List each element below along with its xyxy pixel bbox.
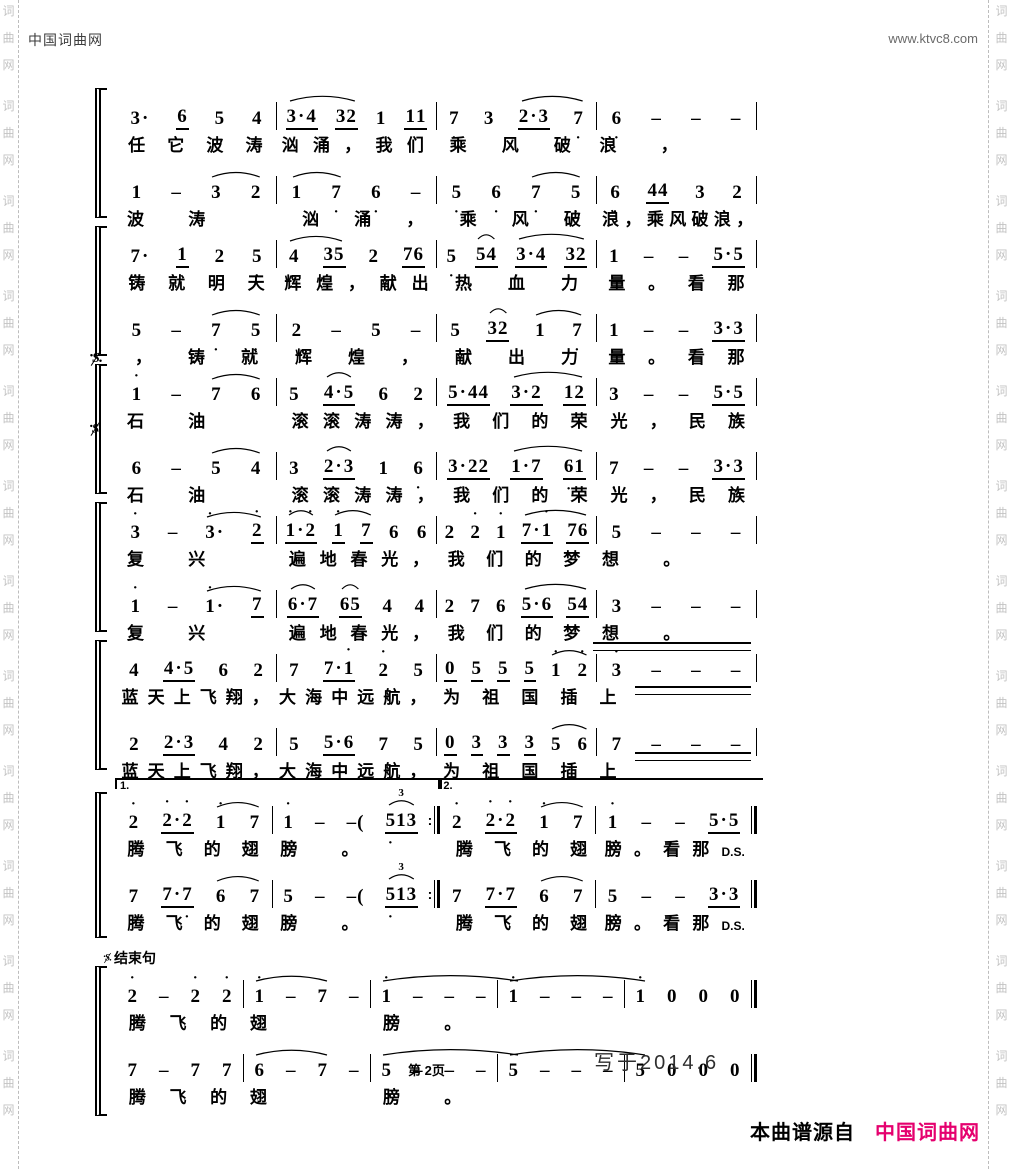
watermark-char: 网 <box>2 438 14 452</box>
note: – <box>330 320 343 342</box>
lyrics-line: 铸就明天辉煌，献出热血力量。看那 <box>117 269 757 293</box>
lyric-measure: 腾飞的翅 <box>445 909 597 933</box>
slur-arc <box>289 232 343 242</box>
note-digit: 2 <box>486 810 497 832</box>
note-digit: 6 <box>612 108 623 130</box>
note: 7 <box>127 1060 140 1082</box>
watermark-char: 词 <box>995 194 1007 208</box>
note: – <box>643 384 656 406</box>
note-digit: 3 <box>336 106 347 128</box>
barline <box>756 728 757 756</box>
note: 1 <box>495 522 508 544</box>
note: – <box>650 596 663 618</box>
note-digit: 3 <box>709 884 720 906</box>
lyric: 腾 <box>456 909 473 934</box>
note: 5 <box>570 182 583 204</box>
note: 3·3 <box>712 456 744 480</box>
note: 7 <box>378 734 391 756</box>
watermark-char: 网 <box>995 913 1007 927</box>
notes-line: 2–221–7–1–––1–––1000 <box>117 966 757 1008</box>
note: 2 <box>252 734 265 756</box>
note-digit: 4 <box>306 106 317 128</box>
ending-label: S结束句 <box>103 948 156 968</box>
note-digit: 7 <box>182 884 193 906</box>
note: – <box>410 182 423 204</box>
note: 1 <box>534 320 547 342</box>
dot: · <box>334 732 343 754</box>
note: 5 <box>288 384 301 406</box>
note-digit: 7 <box>612 734 623 756</box>
lyric: 梦 <box>563 545 580 570</box>
measure: 6–7– <box>244 1060 370 1082</box>
lyric: D.S. <box>722 919 745 933</box>
note: 4·5 <box>323 382 355 406</box>
note: – <box>444 986 457 1008</box>
note: 7 <box>210 384 223 406</box>
note-digit: 6 <box>578 520 589 542</box>
note-digit: 7 <box>361 520 372 542</box>
lyrics-line: 任它波涛汹涌，我们乘风破浪， <box>117 131 757 155</box>
note: 2·2 <box>161 810 193 834</box>
barline: : <box>428 880 441 908</box>
note: 11 <box>404 106 427 130</box>
note-digit: – <box>331 320 342 342</box>
note: 5 <box>412 734 425 756</box>
note-digit: 5 <box>733 382 744 404</box>
measure: 3––– <box>597 660 756 682</box>
measure: 77·767 <box>117 884 272 908</box>
measure: 2–5– <box>277 320 436 342</box>
watermark-char: 网 <box>2 1008 14 1022</box>
note-digit: 6 <box>578 734 589 756</box>
measure: 6·76544 <box>277 594 436 618</box>
dot: · <box>724 244 733 266</box>
volta-bracket: 1. <box>115 778 442 789</box>
watermark-char: 曲 <box>995 31 1007 45</box>
lyric: 大 <box>279 683 296 708</box>
note: 1·2 <box>285 520 317 544</box>
note-digit: 5 <box>452 182 463 204</box>
note-digit: 3 <box>184 732 195 754</box>
slur-arc <box>524 506 587 516</box>
note: –( <box>346 886 366 908</box>
note: 2 <box>128 734 141 756</box>
dot: · <box>298 594 307 616</box>
note-digit: – <box>691 108 702 130</box>
note-digit: – <box>651 596 662 618</box>
note: 7 <box>448 108 461 130</box>
lyric: ， <box>344 131 361 156</box>
note: 5 <box>251 246 264 268</box>
note-digit: 1 <box>539 812 550 834</box>
note: 2 <box>378 660 391 682</box>
note: 0 <box>698 986 711 1008</box>
lyric: ， <box>661 131 678 156</box>
lyric-measure: 遍地春光， <box>282 545 436 569</box>
note: 1 <box>375 108 388 130</box>
lyric-measure: 铸就明天 <box>117 269 276 293</box>
note-digit: 7 <box>211 384 222 406</box>
note-digit: 1 <box>609 246 620 268</box>
note-digit: 2 <box>253 660 264 682</box>
note-digit: 2 <box>222 986 233 1008</box>
measure: 6–54 <box>117 458 276 480</box>
notes-line: 1–32176–567564432 <box>117 162 757 204</box>
watermark-char: 网 <box>995 1103 1007 1117</box>
lyric: 那 <box>728 269 745 294</box>
note-digit: 2 <box>379 660 390 682</box>
note: 7 <box>221 1060 234 1082</box>
note: 7·7 <box>485 884 517 908</box>
note-digit: – <box>731 522 742 544</box>
note-digit: 4 <box>382 596 393 618</box>
note-digit: 3 <box>205 522 216 544</box>
note-digit: 7 <box>211 320 222 342</box>
note: 5 <box>288 734 301 756</box>
note-digit: 7 <box>252 594 263 616</box>
note-digit: 2 <box>324 456 335 478</box>
note-digit: 5 <box>344 382 355 404</box>
note-digit: – <box>572 1060 583 1082</box>
note: 3 <box>611 596 624 618</box>
note: 6 <box>370 182 383 204</box>
note-digit: 5 <box>729 810 740 832</box>
note: 1 <box>215 812 228 834</box>
note-digit: 2 <box>445 596 456 618</box>
lyric: 国 <box>521 683 538 708</box>
note-digit: 2 <box>576 244 587 266</box>
note: 1 <box>332 520 345 544</box>
note-digit: 1 <box>286 520 297 542</box>
note-digit: 3 <box>612 596 623 618</box>
dot: · <box>522 382 531 404</box>
lyric: 腾 <box>129 1083 146 1108</box>
barline <box>756 654 757 682</box>
measure: 55·675 <box>277 732 436 756</box>
lyric: 们 <box>407 131 424 156</box>
note: 4 <box>381 596 394 618</box>
lyric-measure <box>506 1083 628 1107</box>
note: 5 <box>471 658 484 682</box>
system-6: 22·2171––(513:22·2171––5·53腾飞的翅膀。:腾飞的翅膀。… <box>95 778 757 938</box>
note: – <box>690 108 703 130</box>
note: 2 <box>214 246 227 268</box>
note-digit: 5 <box>211 458 222 480</box>
lyric: 飞 <box>200 683 217 708</box>
lyric: 。 <box>342 835 359 860</box>
note-digit: 2 <box>531 382 542 404</box>
slur-arc <box>211 444 261 454</box>
lyric-measure: 膀。 <box>270 909 432 933</box>
note: 1 <box>131 182 144 204</box>
watermark-char: 词 <box>995 764 1007 778</box>
voice-1: 22·2171––(513:22·2171––5·53腾飞的翅膀。:腾飞的翅膀。… <box>117 792 757 859</box>
slur-arc <box>326 368 352 378</box>
note-digit: 2 <box>253 734 264 756</box>
note: 6 <box>495 596 508 618</box>
dot: · <box>174 658 183 680</box>
lyric: 荣 <box>570 407 587 432</box>
note-digit: 2 <box>128 986 139 1008</box>
watermark-char: 词 <box>995 1049 1007 1063</box>
note: 5 <box>214 108 227 130</box>
measure: 77·767 <box>440 884 595 908</box>
slur-arc <box>382 1046 519 1056</box>
note-digit: – <box>159 986 170 1008</box>
note-digit: – <box>159 1060 170 1082</box>
note: 5 <box>250 320 263 342</box>
note-digit: 5 <box>289 734 300 756</box>
note-digit: 1 <box>416 106 427 128</box>
note: 7· <box>129 246 151 268</box>
lyric: 腾 <box>456 835 473 860</box>
note: 7·1 <box>521 520 553 544</box>
note: 7 <box>530 182 543 204</box>
note-digit: 5 <box>350 594 361 616</box>
note-digit: – <box>347 812 358 834</box>
note: – <box>643 458 656 480</box>
note-digit: 4 <box>536 244 547 266</box>
note: 7·7 <box>161 884 193 908</box>
note: 3 <box>694 182 707 204</box>
note: 3 <box>483 108 496 130</box>
note-digit: – <box>445 986 456 1008</box>
watermark-char: 曲 <box>2 126 14 140</box>
watermark-char: 词 <box>995 859 1007 873</box>
note: – <box>674 812 687 834</box>
note-digit: 3 <box>289 458 300 480</box>
dot: · <box>216 596 225 618</box>
note: 2 <box>128 812 141 834</box>
note: 6 <box>538 886 551 908</box>
lyric-measure: 蓝天上飞翔， <box>117 683 274 707</box>
note: 3· <box>204 522 226 544</box>
notes-line: 22·2171––(513:22·2171––5·53 <box>117 792 757 834</box>
note: 3 <box>608 384 621 406</box>
note-digit: 5 <box>413 734 424 756</box>
note: 1 <box>538 812 551 834</box>
note-digit: 7 <box>130 246 141 268</box>
lyrics-line: 腾飞的翅膀。:腾飞的翅膀。看那D.S. <box>117 835 757 859</box>
lyric: 地 <box>320 545 337 570</box>
note-digit: – <box>168 596 179 618</box>
note-digit: 1 <box>283 812 294 834</box>
lyric: 。 <box>648 269 665 294</box>
note-digit: 4 <box>487 244 498 266</box>
note-digit: 1 <box>396 810 407 832</box>
note-digit: – <box>315 812 326 834</box>
lyric: 春 <box>350 545 367 570</box>
voice-1: 2–221–7–1–––1–––1000腾飞的翅膀。 <box>117 966 757 1033</box>
note: 5 <box>210 458 223 480</box>
measure: 1––3·3 <box>597 318 756 342</box>
note-digit: – <box>572 986 583 1008</box>
note-digit: 2 <box>215 246 226 268</box>
note-digit: 5 <box>184 658 195 680</box>
measure: 1––(513 <box>273 810 428 834</box>
note-digit: – <box>679 384 690 406</box>
note: 1 <box>282 812 295 834</box>
note: 6 <box>215 886 228 908</box>
note-digit: 5 <box>447 246 458 268</box>
note-digit: 3 <box>713 318 724 340</box>
note-digit: – <box>642 812 653 834</box>
lyric: 波 <box>206 131 223 156</box>
lyric-measure <box>506 1009 628 1033</box>
note-digit: – <box>286 986 297 1008</box>
watermark-char: 网 <box>995 248 1007 262</box>
note-digit: – <box>411 182 422 204</box>
note: 5 <box>370 320 383 342</box>
slur-arc <box>551 720 588 730</box>
note-digit: 5 <box>283 886 294 908</box>
note-digit: – <box>315 886 326 908</box>
note-digit: – <box>476 986 487 1008</box>
note-digit: 1 <box>564 382 575 404</box>
lyric: 中 <box>331 683 348 708</box>
measure: 732·37 <box>437 106 596 130</box>
watermark-char: 词 <box>2 859 14 873</box>
note-digit: 2 <box>445 522 456 544</box>
written-date: 写于2014.6 <box>594 1046 719 1075</box>
note: – <box>167 522 180 544</box>
note-digit: 3 <box>516 244 527 266</box>
note: 513 <box>385 884 419 908</box>
note: 7 <box>330 182 343 204</box>
note: 54 <box>475 244 498 268</box>
note-digit: 3 <box>498 732 509 754</box>
note: – <box>730 108 743 130</box>
dot: · <box>527 244 536 266</box>
note: 2 <box>221 986 234 1008</box>
watermark-char: 词 <box>2 384 14 398</box>
measure: 055512 <box>437 658 596 682</box>
note-digit: 2 <box>369 246 380 268</box>
slur-arc <box>531 168 581 178</box>
note-digit: 3 <box>287 106 298 128</box>
notes-line: 7·1254352765543·4321––5·5 <box>117 226 757 268</box>
slur-arc <box>513 442 583 452</box>
measure: 22·217 <box>440 810 595 834</box>
note-digit: – <box>642 886 653 908</box>
lyric: D.S. <box>722 845 745 859</box>
watermark-char: 网 <box>2 248 14 262</box>
note: 5 <box>381 1060 394 1082</box>
note-digit: – <box>675 886 686 908</box>
note-digit: – <box>675 812 686 834</box>
note-digit: – <box>413 986 424 1008</box>
lyric-measure: 想。 <box>592 545 756 569</box>
note: 61 <box>563 456 586 480</box>
lyric: 飞 <box>169 1009 186 1034</box>
note-digit: 3 <box>539 106 550 128</box>
lyric: 。 <box>444 1083 461 1108</box>
lyric: 力 <box>561 269 578 294</box>
note-digit: 0 <box>445 732 456 754</box>
lyric: 的 <box>210 1083 227 1108</box>
note-digit: 6 <box>496 596 507 618</box>
watermark-char: 网 <box>995 818 1007 832</box>
notes-line: 77·7675––(513:77·7675––3·33 <box>117 866 757 908</box>
system-5: 44·56277·1250555123–––蓝天上飞翔，大海中远航，为祖国插上2… <box>95 640 757 770</box>
note-digit: 3 <box>130 522 141 544</box>
lyric-measure: 我们的梦 <box>437 545 591 569</box>
note-digit: 4 <box>129 660 140 682</box>
note-digit: 7 <box>331 182 342 204</box>
note: 7 <box>572 812 585 834</box>
watermark-char: 词 <box>995 289 1007 303</box>
note: 2 <box>251 520 264 544</box>
barline <box>751 806 757 834</box>
note-digit: 1 <box>496 522 507 544</box>
watermark-char: 词 <box>2 954 14 968</box>
note-digit: 2 <box>306 520 317 542</box>
lyric: 我 <box>448 545 465 570</box>
measure: 5––– <box>597 522 756 544</box>
note-digit: 6 <box>371 182 382 204</box>
dot: · <box>724 318 733 340</box>
watermark-char: 词 <box>2 1049 14 1063</box>
lyric: 。 <box>663 545 680 570</box>
note-digit: 0 <box>445 658 456 680</box>
lyric: 。 <box>444 1009 461 1034</box>
note-digit: 2 <box>732 182 743 204</box>
slur-arc <box>477 230 495 240</box>
note-digit: – <box>691 596 702 618</box>
note-digit: 4 <box>578 594 589 616</box>
voice-2: 22·34255·6750333567–––蓝天上飞翔，大海中远航，为祖国插上 <box>117 714 757 781</box>
measure: 2765·654 <box>437 594 596 618</box>
dot: · <box>173 810 182 832</box>
lyric: 辉 <box>284 269 301 294</box>
dot: · <box>216 522 225 544</box>
note: 4 <box>128 660 141 682</box>
note-digit: 5 <box>733 244 744 266</box>
note: 2 <box>291 320 304 342</box>
note: – <box>678 458 691 480</box>
lyric: 量 <box>608 269 625 294</box>
note-digit: 5 <box>608 886 619 908</box>
watermark-char: 曲 <box>2 981 14 995</box>
measure: 1–7– <box>244 986 370 1008</box>
lyric: 煌 <box>316 269 333 294</box>
note: 2 <box>412 384 425 406</box>
note: – <box>730 660 743 682</box>
note: – <box>571 1060 584 1082</box>
lyric: 膀 <box>383 1083 400 1108</box>
measure: 53217 <box>437 318 596 342</box>
watermark-char: 网 <box>2 913 14 927</box>
note-digit: 4 <box>289 246 300 268</box>
note-digit: 2 <box>182 810 193 832</box>
lyric: 浪 <box>600 131 617 156</box>
note-digit: – <box>411 320 422 342</box>
lyric: 天 <box>148 683 165 708</box>
lyric: 天 <box>248 269 265 294</box>
note-digit: 1 <box>636 986 647 1008</box>
note: 0 <box>729 986 742 1008</box>
note-digit: 6 <box>340 594 351 616</box>
note: 1 <box>550 660 563 682</box>
watermark-char: 曲 <box>995 1076 1007 1090</box>
note-digit: 6 <box>413 458 424 480</box>
measure: 5––(513 <box>273 884 428 908</box>
note-digit: 3 <box>733 318 744 340</box>
note: – <box>475 1060 488 1082</box>
watermark-char: 网 <box>2 818 14 832</box>
note-digit: 3 <box>344 456 355 478</box>
lyric: 那 <box>692 835 709 860</box>
